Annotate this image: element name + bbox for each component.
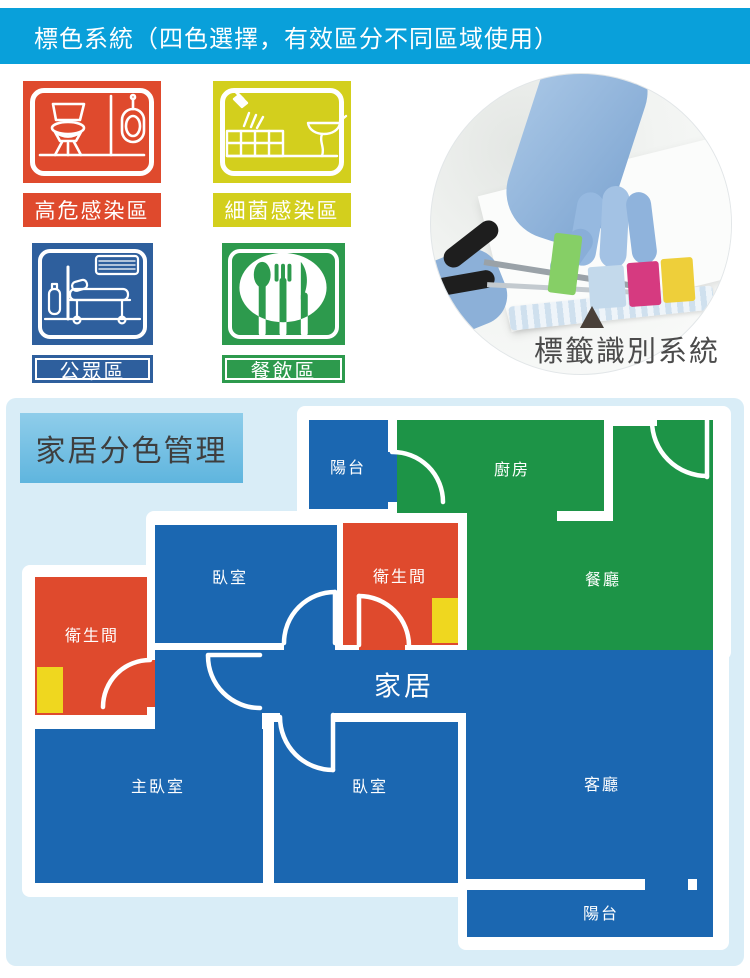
pointer-triangle-icon	[580, 306, 604, 328]
label-master-bedroom: 主臥室	[131, 773, 185, 797]
hallway-passage	[155, 650, 262, 729]
floorplan-title: 家居分色管理	[20, 413, 243, 483]
label-balcony-bottom: 陽台	[583, 900, 619, 924]
zone-red-label-text: 高危感染區	[35, 195, 150, 225]
header-bar: 標色系統（四色選擇，有效區分不同區域使用）	[0, 8, 750, 64]
bathroom-left-yellow-patch	[37, 667, 63, 713]
door-opening	[388, 452, 397, 502]
hospital-bed-icon	[32, 243, 153, 345]
room-bedroom-lower	[274, 722, 458, 883]
zone-yellow-label-text: 細菌感染區	[225, 195, 340, 225]
zone-blue-label-text: 公眾區	[60, 355, 126, 384]
cutlery-plate-icon	[222, 243, 345, 345]
zone-red-square	[23, 81, 161, 183]
zone-green-label: 餐飲區	[222, 355, 345, 383]
zone-yellow-square	[213, 81, 351, 183]
label-home-center: 家居	[374, 665, 434, 704]
zone-red-label: 高危感染區	[23, 193, 161, 227]
label-balcony-top: 陽台	[330, 454, 366, 478]
cloth-tab-magenta	[627, 261, 662, 307]
label-bathroom-mid: 衛生間	[373, 563, 427, 587]
label-kitchen: 廚房	[494, 456, 530, 480]
room-living	[466, 650, 713, 879]
photo-caption: 標籤識別系統	[517, 328, 737, 370]
door-opening	[613, 418, 657, 426]
glove-finger	[599, 185, 630, 268]
page-title: 標色系統（四色選擇，有效區分不同區域使用）	[0, 19, 559, 54]
label-dining: 餐廳	[585, 566, 621, 590]
cloth-tab-lightblue	[588, 265, 627, 309]
cloth-tab-yellow	[661, 257, 696, 303]
door-opening	[697, 875, 713, 895]
door-opening	[280, 710, 333, 724]
label-bedroom-upper: 臥室	[212, 564, 248, 588]
room-master-bedroom	[35, 729, 263, 883]
bathroom-mid-yellow-patch	[432, 598, 458, 643]
zone-green-label-text: 餐飲區	[251, 355, 317, 384]
wall-arm	[557, 511, 613, 521]
label-bathroom-left: 衛生間	[65, 622, 119, 646]
label-living: 客廳	[584, 771, 620, 795]
label-bedroom-lower: 臥室	[352, 773, 388, 797]
zone-green-square	[222, 243, 345, 345]
zone-yellow-label: 細菌感染區	[213, 193, 351, 227]
door-opening	[645, 875, 688, 895]
shower-bathtub-sink-icon	[213, 81, 351, 183]
infographic-page: 標色系統（四色選擇，有效區分不同區域使用） 高危感染區	[0, 0, 750, 978]
toilet-urinal-icon	[23, 81, 161, 183]
zone-blue-square	[32, 243, 153, 345]
floorplan-title-text: 家居分色管理	[36, 426, 228, 470]
zone-blue-label: 公眾區	[32, 355, 153, 383]
